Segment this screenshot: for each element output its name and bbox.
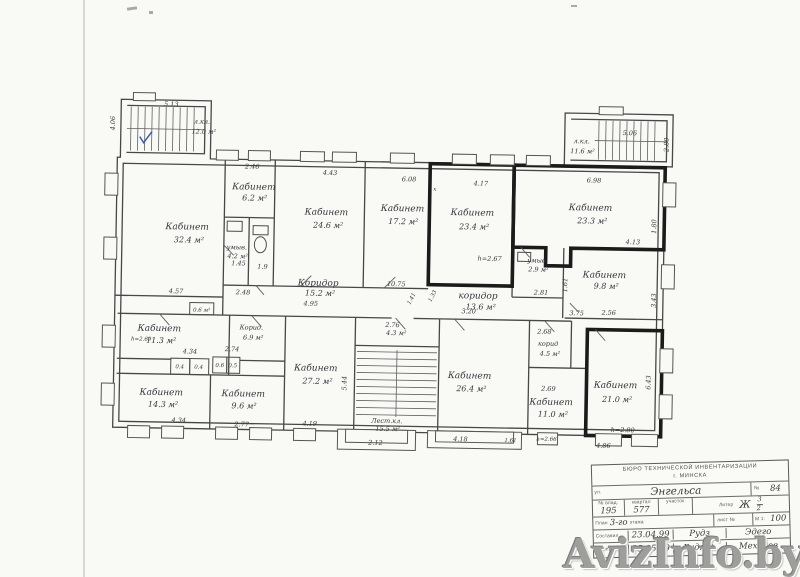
room-label-kor-4-5-name: корид <box>538 340 558 348</box>
liter-fraction-bottom: 2 <box>757 505 763 512</box>
room-label-stair-ne-area: 11.6 м² <box>570 147 595 155</box>
room-label-umyv-2-9-name: умыв. <box>526 256 547 264</box>
room-label-kab-17-2-name: Кабинет <box>380 203 425 215</box>
dim-4-18: 4.18 <box>452 435 468 443</box>
room-label-kab-26-4-name: Кабинет <box>447 370 492 382</box>
room-label-kab-23-4-area: 23.4 м² <box>458 222 489 232</box>
room-label-wc-1-9-area: 1.9 <box>257 263 267 271</box>
liter-cell: Литер Ж 3 2 <box>693 495 789 514</box>
dim-4-19: 4.19 <box>301 419 317 427</box>
dim-6-98: 6.98 <box>587 176 602 184</box>
uchastok-label: участок <box>666 499 684 504</box>
room-label-kab-23-3-area: 23.3 м² <box>576 216 607 226</box>
dim-2-48: 2.48 <box>235 288 251 296</box>
dim-2-68: 2.68 <box>536 328 552 336</box>
dim-3-75: 3.75 <box>569 309 584 317</box>
room-label-stair-s-area: 15.5 м² <box>375 425 400 433</box>
dim-6-08: 6.08 <box>402 175 417 183</box>
room-label-stair-nw-name: л.кл. <box>194 118 210 126</box>
dim-0-4-b: 0.4 <box>194 365 203 371</box>
dim-2-46: 2.46 <box>244 162 260 170</box>
room-label-umyv-4-2-name: умыв. <box>226 243 247 251</box>
dim-0-6: 0.6 <box>215 363 224 369</box>
room-label-kab-21-0-name: Кабинет <box>593 380 638 392</box>
liter-value: Ж <box>739 499 751 510</box>
room-label-kor-4-5-area: 4.5 м² <box>539 350 561 358</box>
floor-value: 3-го <box>608 518 630 529</box>
vlad-cell: № влад. 195 <box>593 500 625 517</box>
room-label-kab-14-3-area: 14.3 м² <box>148 400 178 410</box>
scanned-floor-plan-page: л.кл. 12.0 м² л.кл. 11.6 м² Кабинет 32.4… <box>0 0 800 577</box>
dim-0-5: 0.5 <box>228 363 237 369</box>
dim-2-76: 2.76 <box>384 321 400 329</box>
dim-6-43: 6.43 <box>644 375 652 390</box>
dim-0-4-a: 0.4 <box>175 364 184 370</box>
room-label-kor-6-9-name: Корид. <box>239 323 264 331</box>
room-label-kab-11-0-name: Кабинет <box>528 396 573 408</box>
dim-2-74: 2.74 <box>224 345 240 353</box>
dim-4-43: 4.43 <box>322 169 338 177</box>
room-label-kab-6-2-name: Кабинет <box>231 181 276 193</box>
dim-3-43: 3.43 <box>650 293 658 308</box>
x-mark: х <box>433 187 437 193</box>
room-label-kab-11-3-name: Кабинет <box>137 323 182 335</box>
dim-2-81: 2.81 <box>533 288 549 296</box>
dim-2-12: 2.12 <box>367 439 383 447</box>
room-label-kor-15-2-name: Коридор <box>297 278 339 289</box>
dim-3-20: 3.20 <box>461 307 476 315</box>
plan-label: План <box>593 521 608 526</box>
room-label-stair-nw-area: 12.0 м² <box>191 128 216 136</box>
note-h-2-69: h=2.69 <box>131 336 152 342</box>
room-label-kab-21-0-area: 21.0 м² <box>601 395 632 405</box>
room-label-kab-23-4-name: Кабинет <box>450 207 495 219</box>
scale-value: 100 <box>767 513 789 524</box>
room-label-stair-ne-name: л.кл. <box>573 137 589 145</box>
room-label-kab-17-2-area: 17.2 м² <box>388 217 418 227</box>
house-number-value: 84 <box>762 483 788 494</box>
room-label-kab-14-3-name: Кабинет <box>138 387 183 399</box>
room-label-4-3-area: 4.3 м² <box>385 329 407 337</box>
vlad-value: 195 <box>600 506 616 516</box>
kvartal-value: 577 <box>633 505 649 515</box>
street-label: ул. <box>592 490 601 495</box>
room-label-kab-11-0-area: 11.0 м² <box>538 410 568 420</box>
dim-4-57: 4.57 <box>168 287 184 295</box>
dim-2-56: 2.56 <box>600 309 616 317</box>
house-number-label: № <box>750 482 763 495</box>
room-label-kab-32-4-name: Кабинет <box>164 221 209 233</box>
scale-label: М 1: <box>752 513 767 525</box>
dim-4-95: 4.95 <box>303 299 319 307</box>
room-label-closet-0-6-area: 0.6 м² <box>193 307 210 314</box>
dim-5-13: 5.13 <box>164 100 179 108</box>
note-h-2-67: h=2.67 <box>478 255 503 263</box>
room-label-kor-6-9-area: 6.9 м² <box>243 333 264 341</box>
room-label-kab-6-2-area: 6.2 м² <box>242 193 267 202</box>
room-label-kab-24-6-name: Кабинет <box>304 206 349 218</box>
dim-2-77: 2.77 <box>233 420 249 428</box>
stairs-ne <box>594 121 667 161</box>
room-label-kab-24-6-area: 24.6 м² <box>312 221 343 231</box>
dim-4-17: 4.17 <box>473 179 489 187</box>
room-label-umyv-2-9-area: 2.9 м² <box>527 265 549 273</box>
room-label-kab-9-6-area: 9.6 м² <box>231 401 256 410</box>
stairs-south <box>356 349 437 417</box>
dim-4-06: 4.06 <box>109 116 117 132</box>
dim-10-75: 10.75 <box>387 280 406 288</box>
dim-4-34-a: 4.34 <box>182 347 198 355</box>
dim-1-41: 1.41 <box>407 292 418 306</box>
dim-4-34-b: 4.34 <box>170 416 186 424</box>
room-label-kab-32-4-area: 32.4 м² <box>174 235 204 245</box>
dim-1-80: 1.80 <box>650 219 658 234</box>
floor-suffix: этажа <box>630 518 714 525</box>
room-label-kab-9-8-name: Кабинет <box>582 269 627 281</box>
avizinfo-watermark: AvizInfo.by <box>563 530 800 577</box>
room-label-kor-15-2-area: 15.2 м² <box>305 289 335 299</box>
dim-1-45: 1.45 <box>231 259 246 267</box>
dim-2-69: 2.69 <box>540 385 556 393</box>
liter-fraction: 3 2 <box>756 496 763 511</box>
room-label-kab-9-6-name: Кабинет <box>220 388 265 400</box>
sheet-label: лист № <box>713 513 752 526</box>
room-label-kab-23-3-name: Кабинет <box>568 202 613 214</box>
note-h-2-66: h=2.66 <box>536 437 557 443</box>
dim-1-61-b: 1.61 <box>504 438 516 444</box>
dim-4-86: 4.86 <box>595 442 611 450</box>
room-label-kab-27-2-name: Кабинет <box>293 362 338 374</box>
liter-label: Литер <box>719 502 733 507</box>
note-h-2-80: h=2.80 <box>611 426 635 434</box>
dim-1-61-a: 1.61 <box>561 278 569 293</box>
dim-1-33: 1.33 <box>428 289 439 303</box>
dim-4-13: 4.13 <box>625 238 641 246</box>
uchastok-cell: участок <box>659 498 693 515</box>
blue-pen-check-mark <box>140 132 152 143</box>
dim-5-44: 5.44 <box>340 376 348 391</box>
room-label-kor-13-6-name: коридор <box>458 291 498 302</box>
room-label-kab-9-8-area: 9.8 м² <box>594 282 619 291</box>
room-label-kab-26-4-area: 26.4 м² <box>455 384 486 394</box>
dim-2-80: 2.80 <box>663 137 671 153</box>
kvartal-cell: квартал 577 <box>625 499 659 516</box>
dim-5-06: 5.06 <box>623 129 638 137</box>
room-label-kab-27-2-area: 27.2 м² <box>301 376 332 386</box>
